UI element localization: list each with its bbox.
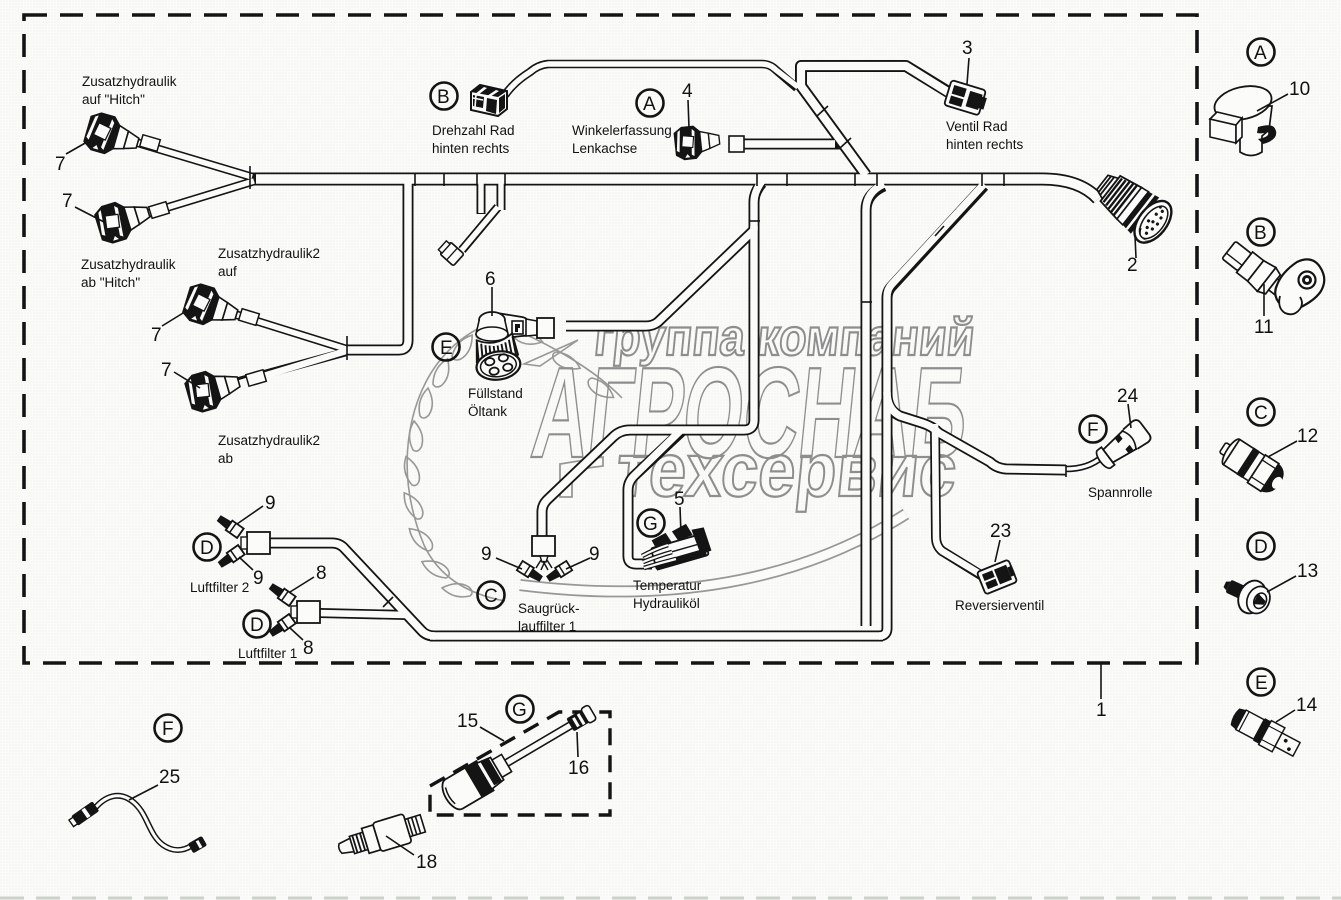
svg-text:ab: ab [218,451,233,466]
svg-text:Lenkachse: Lenkachse [572,141,637,156]
svg-text:Öltank: Öltank [468,404,507,419]
svg-text:ab "Hitch": ab "Hitch" [81,275,140,290]
svg-text:G: G [643,514,658,535]
svg-text:C: C [484,586,498,607]
svg-text:18: 18 [416,852,437,873]
svg-text:9: 9 [253,568,264,589]
svg-text:13: 13 [1297,561,1318,582]
svg-text:9: 9 [265,493,276,514]
svg-text:D: D [200,538,214,559]
svg-text:hinten rechts: hinten rechts [432,141,510,156]
svg-text:D: D [250,615,264,636]
svg-text:G: G [512,700,527,721]
svg-text:Zusatzhydraulik2: Zusatzhydraulik2 [218,433,320,448]
svg-text:1: 1 [1096,700,1107,721]
svg-text:auf: auf [218,264,237,279]
svg-text:Ventil Rad: Ventil Rad [946,119,1008,134]
svg-text:Luftfilter 1: Luftfilter 1 [238,646,297,661]
svg-text:Luftfilter 2: Luftfilter 2 [190,580,249,595]
svg-text:2: 2 [1127,255,1138,276]
svg-text:C: C [1254,403,1268,424]
svg-text:Zusatzhydraulik: Zusatzhydraulik [82,74,177,89]
svg-text:3: 3 [962,38,973,59]
svg-text:Füllstand: Füllstand [468,386,523,401]
svg-text:9: 9 [481,544,492,565]
svg-text:10: 10 [1289,79,1310,100]
svg-text:16: 16 [568,758,589,779]
svg-text:Spannrolle: Spannrolle [1088,485,1153,500]
svg-text:Zusatzhydraulik: Zusatzhydraulik [81,257,176,272]
svg-text:9: 9 [589,544,600,565]
svg-text:A: A [1254,43,1267,64]
svg-text:15: 15 [457,711,478,732]
svg-text:B: B [1254,223,1267,244]
svg-text:24: 24 [1117,386,1139,407]
svg-text:hinten rechts: hinten rechts [946,137,1024,152]
svg-text:Saugrück-: Saugrück- [518,601,580,616]
svg-text:auf "Hitch": auf "Hitch" [82,92,145,107]
svg-text:25: 25 [159,767,180,788]
svg-text:Hydrauliköl: Hydrauliköl [633,596,700,611]
svg-text:lauffilter 1: lauffilter 1 [518,619,576,634]
svg-text:Reversierventil: Reversierventil [955,598,1044,613]
svg-text:E: E [440,338,453,359]
svg-text:7: 7 [62,191,73,212]
svg-text:B: B [437,87,450,108]
svg-text:Winkelerfassung: Winkelerfassung [572,123,672,138]
svg-text:D: D [1254,537,1268,558]
svg-text:F: F [1087,420,1099,441]
svg-text:4: 4 [682,81,693,102]
svg-text:F: F [162,719,174,740]
svg-text:14: 14 [1296,695,1318,716]
svg-text:5: 5 [674,489,685,510]
svg-text:23: 23 [990,521,1011,542]
svg-text:Zusatzhydraulik2: Zusatzhydraulik2 [218,246,320,261]
svg-text:7: 7 [161,360,172,381]
svg-text:6: 6 [485,269,496,290]
svg-text:7: 7 [55,154,66,175]
svg-text:A: A [643,94,656,115]
svg-text:Drehzahl Rad: Drehzahl Rad [432,123,515,138]
svg-text:Temperatur: Temperatur [633,578,702,593]
svg-text:8: 8 [303,638,314,659]
svg-text:8: 8 [316,563,327,584]
svg-text:7: 7 [151,325,162,346]
svg-text:12: 12 [1297,426,1318,447]
svg-text:E: E [1255,673,1268,694]
svg-text:11: 11 [1254,317,1274,338]
